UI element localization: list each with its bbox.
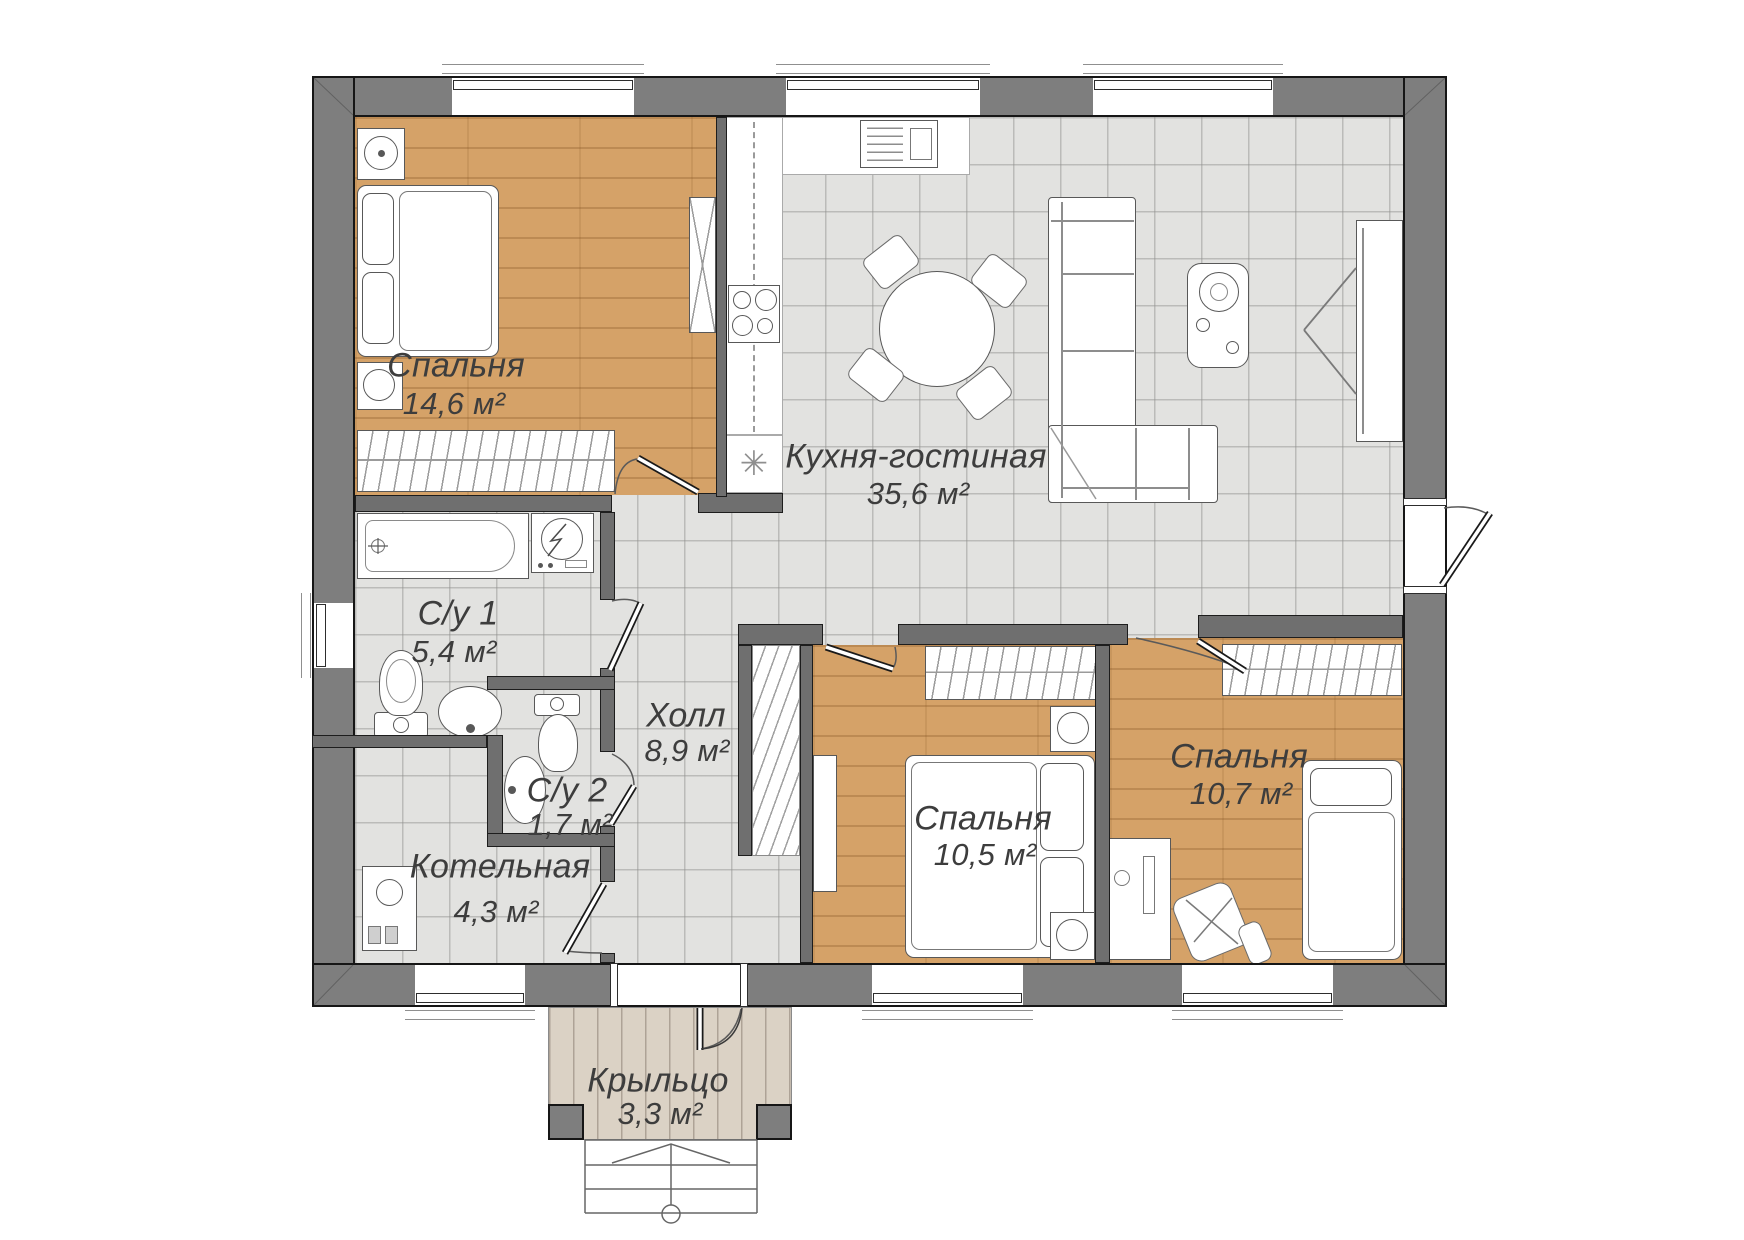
- room-area-bedroom3: 10,7 м²: [1190, 776, 1293, 812]
- room-area-porch: 3,3 м²: [617, 1096, 702, 1132]
- room-area-bathroom1: 5,4 м²: [411, 634, 496, 670]
- desk-chair-cross-icon: [1186, 898, 1238, 944]
- room-area-bedroom1: 14,6 м²: [403, 386, 506, 422]
- room-label-porch: Крыльцо: [587, 1062, 728, 1101]
- room-label-bedroom2: Спальня: [914, 800, 1052, 839]
- room-label-kitchen-living: Кухня-гостиная: [785, 438, 1046, 477]
- bathtub-faucet-icon: [368, 538, 388, 554]
- room-label-hall: Холл: [646, 697, 726, 736]
- room-label-bathroom2: С/у 2: [527, 772, 608, 811]
- room-area-kitchen-living: 35,6 м²: [867, 476, 970, 512]
- room-area-bedroom2: 10,5 м²: [934, 837, 1037, 873]
- porch-steps: [585, 1140, 757, 1223]
- entrance-porch-arc: [701, 1008, 742, 1049]
- plan-linework: [0, 0, 1744, 1240]
- washer-bolt-icon: [548, 524, 566, 556]
- room-area-boiler: 4,3 м²: [453, 894, 538, 930]
- room-area-bathroom2: 1,7 м²: [527, 807, 612, 843]
- room-label-bedroom1: Спальня: [387, 347, 525, 386]
- sofa-corner-miter: [1051, 428, 1096, 499]
- tv-direction-lines: [1304, 268, 1356, 394]
- floor-plan-canvas: ✳: [0, 0, 1744, 1240]
- room-label-bedroom3: Спальня: [1170, 738, 1308, 777]
- room-label-boiler: Котельная: [410, 848, 591, 887]
- room-area-hall: 8,9 м²: [644, 733, 729, 769]
- room-label-bathroom1: С/у 1: [418, 595, 499, 634]
